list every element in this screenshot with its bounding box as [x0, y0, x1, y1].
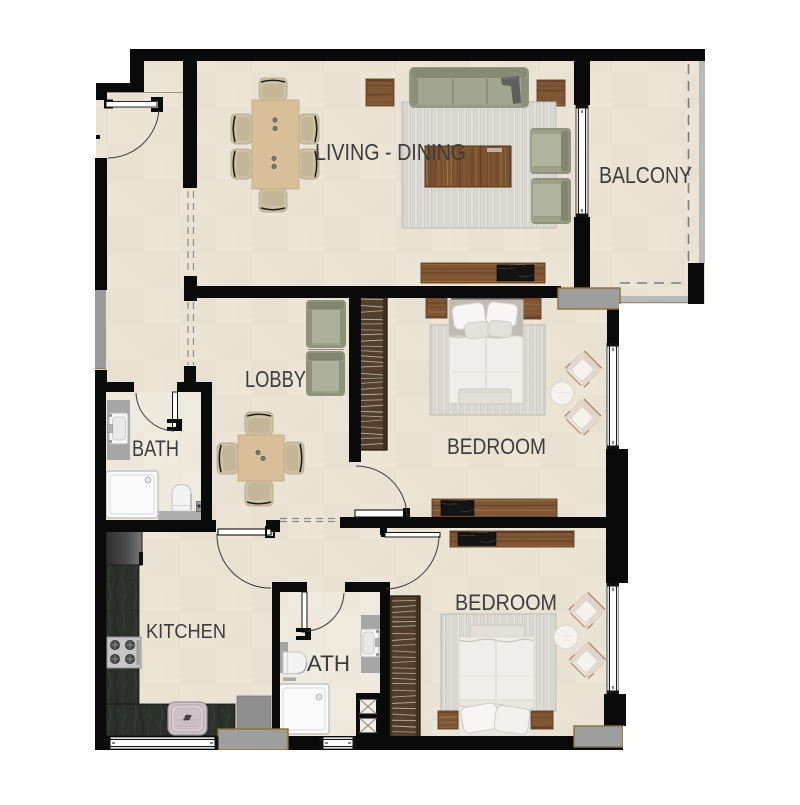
svg-text:LOBBY: LOBBY [245, 366, 306, 392]
svg-text:BEDROOM: BEDROOM [455, 590, 557, 615]
svg-text:BATH: BATH [132, 436, 179, 461]
svg-text:LIVING - DINING: LIVING - DINING [315, 139, 466, 165]
svg-text:KITCHEN: KITCHEN [146, 621, 226, 643]
svg-text:BALCONY: BALCONY [599, 162, 692, 188]
svg-text:BEDROOM: BEDROOM [447, 434, 546, 459]
